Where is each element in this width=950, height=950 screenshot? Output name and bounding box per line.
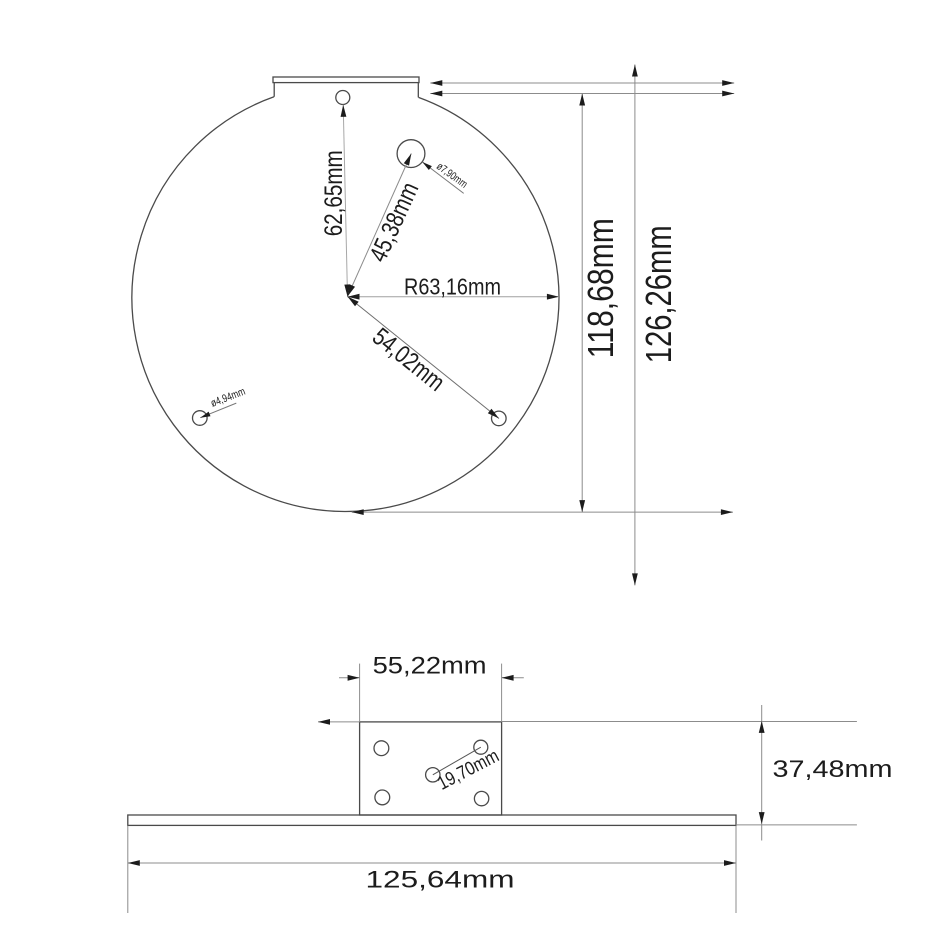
svg-text:R63,16mm: R63,16mm <box>404 273 501 299</box>
svg-text:54,02mm: 54,02mm <box>367 323 450 397</box>
svg-text:126,26mm: 126,26mm <box>638 225 679 363</box>
svg-text:55,22mm: 55,22mm <box>373 652 487 679</box>
svg-text:37,48mm: 37,48mm <box>773 756 893 783</box>
svg-text:45,38mm: 45,38mm <box>364 178 424 266</box>
svg-text:62,65mm: 62,65mm <box>320 150 348 236</box>
svg-text:ø7,90mm: ø7,90mm <box>434 160 469 190</box>
svg-text:118,68mm: 118,68mm <box>580 218 621 358</box>
svg-text:125,64mm: 125,64mm <box>366 867 515 894</box>
svg-text:19,70mm: 19,70mm <box>434 746 502 795</box>
